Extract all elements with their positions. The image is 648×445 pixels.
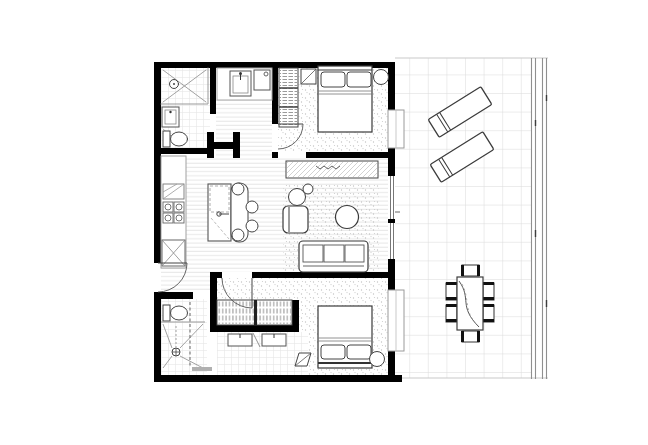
vanity-tap [169,111,171,113]
dining-table [457,277,483,330]
stool [232,183,244,195]
dining-chair [446,282,457,300]
dining-chair [446,304,457,322]
balustrade-lines [532,58,547,379]
entry-floor [161,272,210,292]
bed-1-pillow-left [321,72,345,87]
laundry-nook [217,68,272,100]
wall-left-upper [154,62,161,263]
glass-door-jamb [388,259,395,263]
bed-2 [318,306,372,368]
toilet-bowl [171,132,188,146]
wardrobe2-frame-right [292,300,299,327]
shower-rose-center [173,83,175,85]
wall-right-a [388,62,395,110]
wall-right-b [388,148,395,174]
armchair [283,206,308,233]
coffee-table [336,206,359,229]
glass-door-mullion [388,219,395,223]
linen-closet-shelf [207,142,240,149]
wall-right-c [388,263,395,290]
glass-door-jamb [388,172,395,176]
bed-1 [318,66,372,132]
tv-unit-hatch [287,162,377,177]
bedside-round-table-2 [370,352,385,367]
bed-2-pillow-right [347,345,371,359]
laundry-hallway-floor [216,100,272,158]
dining-chair [483,304,494,322]
wardrobe-2-divider [254,300,257,325]
wall-left-lower [154,293,161,382]
dining-chair [461,265,480,276]
wall-bathroom2-top [154,292,193,299]
bed-1-pillow-right [347,72,371,87]
glass-balustrade [532,58,547,379]
wall-bedroom1-bottom-stub [272,152,278,158]
dining-chair [461,331,480,342]
wall-bedroom1-bottom [306,152,395,158]
plant-pot-small [303,184,313,194]
floor-plan-svg: two-bedroom-apartment-floor-plan-with-te… [0,0,648,445]
wall-bedroom1-left [272,62,278,124]
wall-bathroom1-bottom [154,148,212,154]
terrace [395,58,548,379]
wardrobe2-frame-bottom [210,325,299,332]
stool [246,201,258,213]
toilet-cistern-2 [163,305,170,321]
toilet-cistern [163,131,170,147]
stool [232,229,244,241]
toilet-bowl-2 [171,306,188,320]
wall-bedroom2-left [210,272,217,332]
bed-2-pillow-left [321,345,345,359]
wall-bathroom1-right [210,62,216,114]
sofa [299,241,368,272]
glass-door-panes [391,174,394,263]
wall-bedroom2-top-b [252,272,388,278]
floor-plan-image: two-bedroom-apartment-floor-plan-with-te… [0,0,648,445]
wardrobe-1-hatch [280,69,297,126]
dining-chair [483,282,494,300]
island-bench [208,184,231,241]
wall-right-d [388,351,395,382]
stool [246,220,258,232]
door-threshold [192,367,212,371]
balustrade-posts [536,95,547,307]
wall-bottom [154,375,402,382]
bedside-round-table-1 [374,70,389,85]
